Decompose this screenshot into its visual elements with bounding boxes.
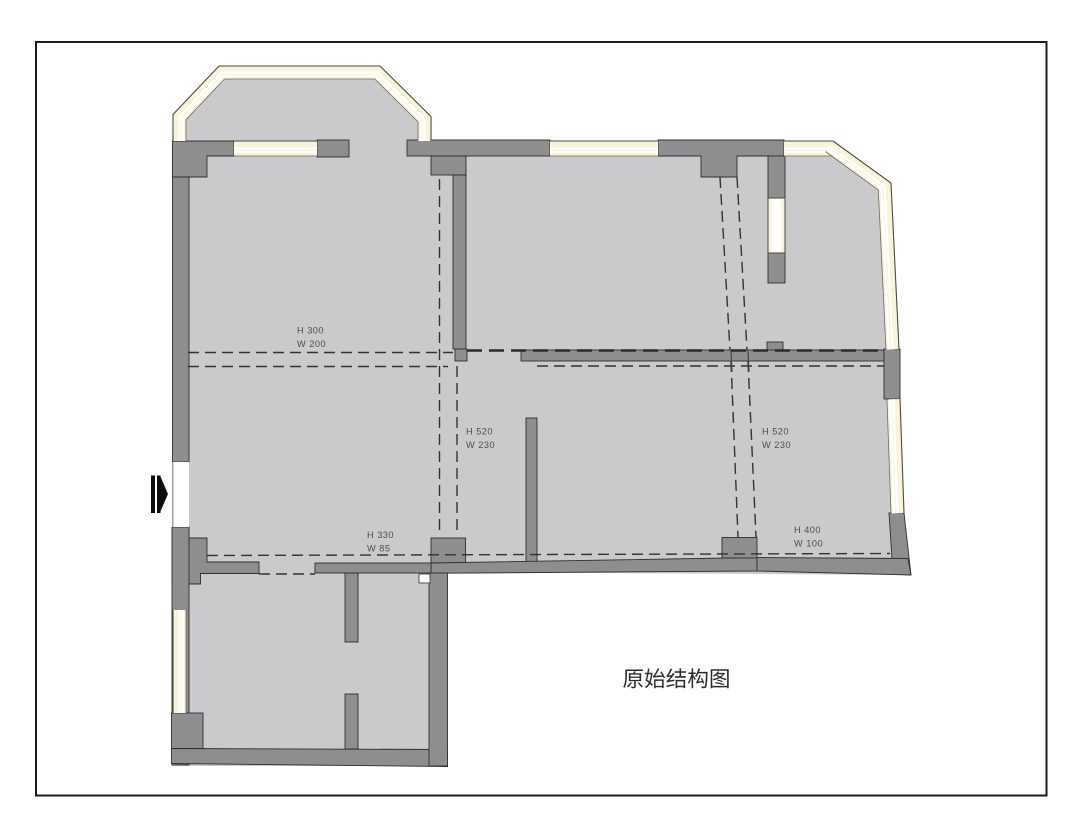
svg-text:W 100: W 100 bbox=[794, 539, 823, 549]
svg-text:W 200: W 200 bbox=[297, 339, 326, 349]
svg-text:H 400: H 400 bbox=[794, 525, 821, 535]
svg-text:H 520: H 520 bbox=[762, 427, 789, 437]
svg-text:W 230: W 230 bbox=[466, 440, 495, 450]
svg-text:W 85: W 85 bbox=[367, 544, 390, 554]
svg-text:H 330: H 330 bbox=[367, 530, 394, 540]
svg-text:W 230: W 230 bbox=[762, 440, 791, 450]
svg-text:H 300: H 300 bbox=[297, 326, 324, 336]
svg-text:H 520: H 520 bbox=[466, 427, 493, 437]
